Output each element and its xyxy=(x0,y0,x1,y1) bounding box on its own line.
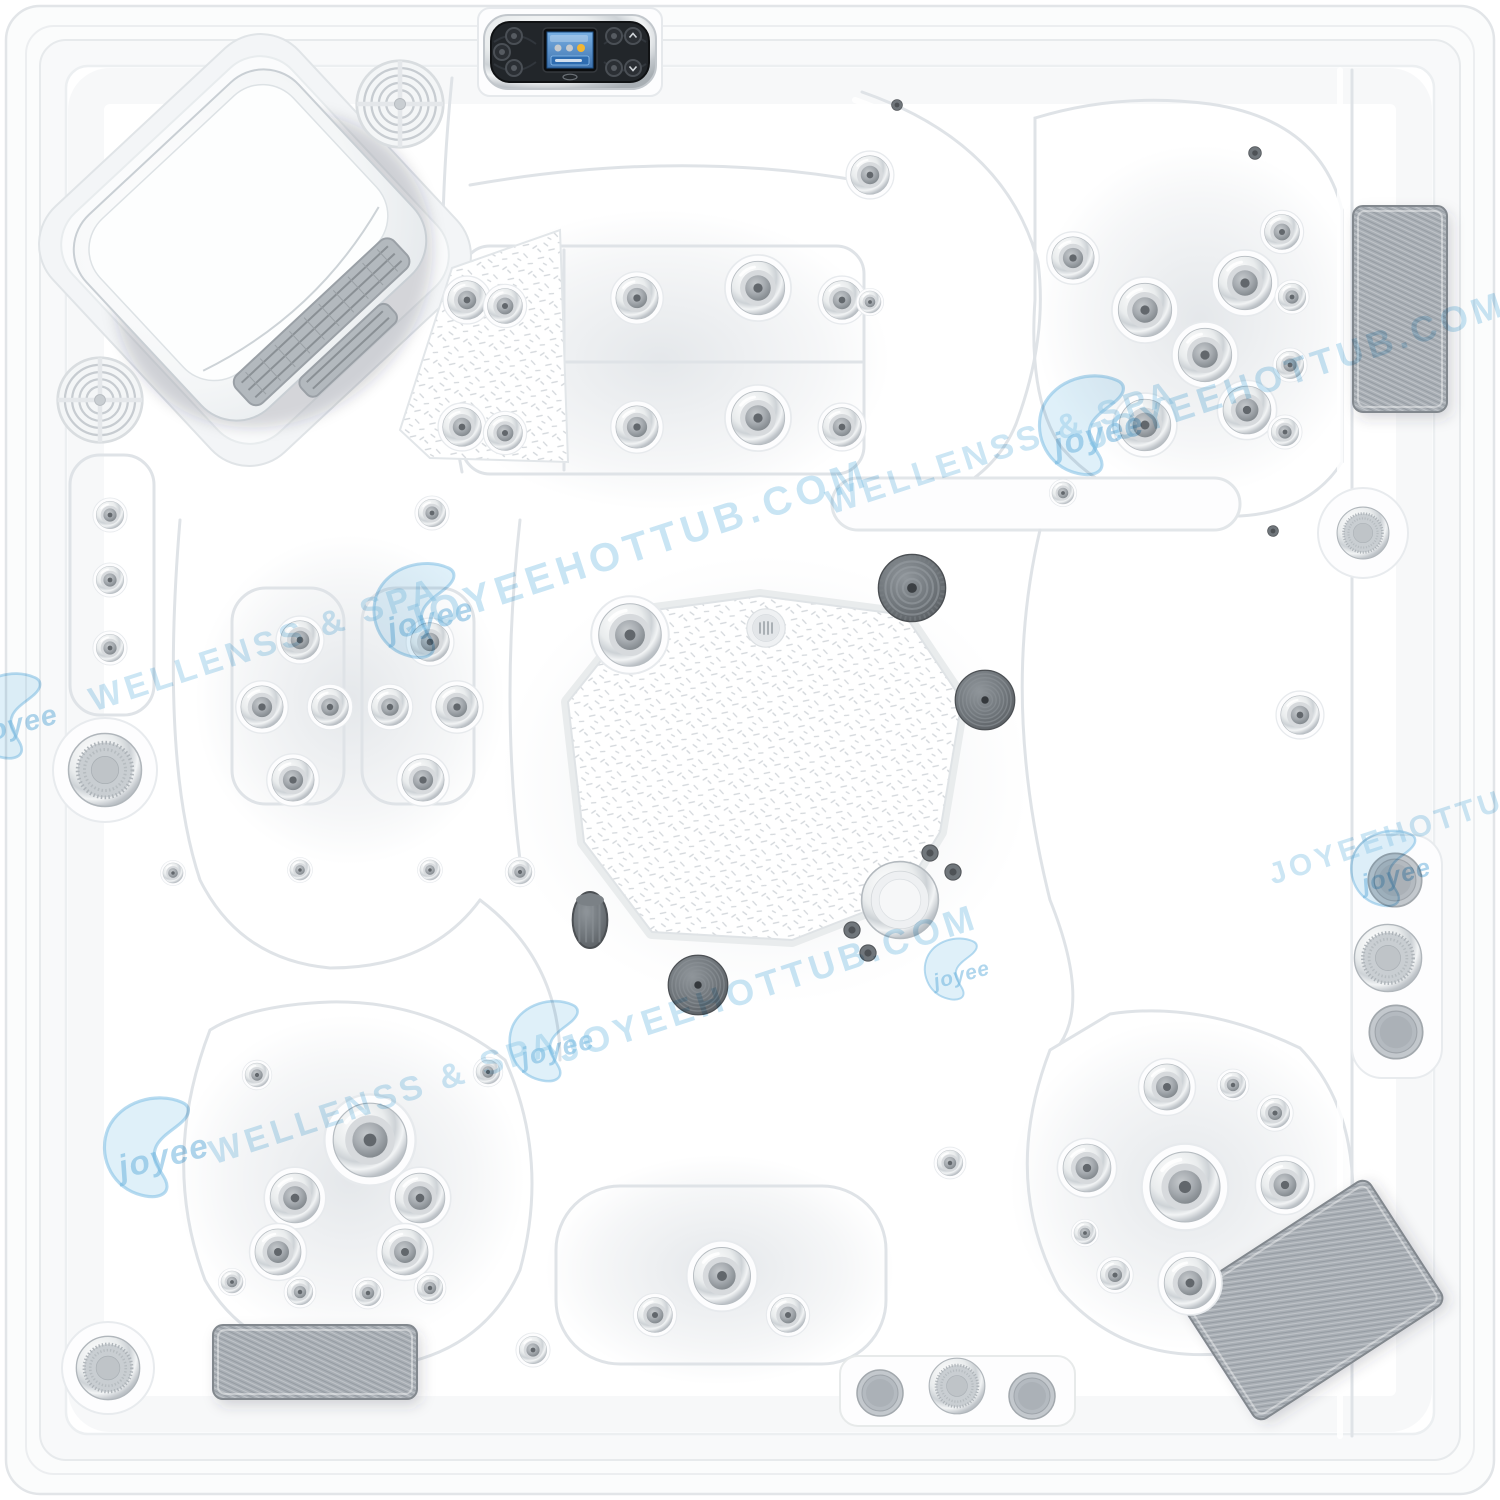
hot-tub-photo: joyeeJOYEEHOTTUB.COMWELLENSS & SPAWELLEN… xyxy=(0,0,1500,1500)
water-jet xyxy=(725,385,791,451)
jets2-button xyxy=(606,60,622,76)
filter-cap xyxy=(878,554,945,621)
speaker-grille xyxy=(357,61,443,147)
water-jet xyxy=(934,1147,966,1179)
water-jet xyxy=(633,1293,676,1336)
water-jet xyxy=(1139,1059,1196,1116)
water-jet xyxy=(1047,232,1099,284)
diverter-knob xyxy=(69,734,142,807)
water-jet xyxy=(687,1241,758,1312)
control-cap xyxy=(857,1370,903,1416)
fastener-dot xyxy=(945,864,961,880)
water-jet xyxy=(1071,1219,1098,1246)
water-jet xyxy=(287,857,312,882)
water-jet xyxy=(1142,1144,1229,1231)
speaker-grille xyxy=(58,358,143,443)
lcd-label-text-line xyxy=(555,59,582,62)
water-jet xyxy=(93,563,127,597)
water-jet xyxy=(1049,479,1076,506)
water-jet xyxy=(1217,1069,1249,1101)
water-jet xyxy=(1158,1251,1222,1315)
water-jet xyxy=(846,151,894,199)
water-jet xyxy=(611,401,663,453)
water-jet xyxy=(367,684,413,730)
water-jet xyxy=(611,272,663,324)
water-jet xyxy=(1275,280,1309,314)
water-jet xyxy=(766,1293,809,1336)
water-jet xyxy=(505,857,535,887)
water-jet xyxy=(218,1268,245,1295)
control-cap xyxy=(1009,1373,1055,1419)
water-jet xyxy=(1097,1257,1133,1293)
water-jet xyxy=(93,498,127,532)
water-jet xyxy=(93,631,127,665)
water-jet xyxy=(267,754,319,806)
mode-button xyxy=(494,44,510,60)
lcd-status-icon-row xyxy=(550,35,588,42)
control-panel xyxy=(478,8,662,96)
water-jet xyxy=(352,1277,384,1309)
water-jet xyxy=(1255,1155,1314,1214)
water-jet xyxy=(1276,691,1324,739)
water-jet xyxy=(1257,1095,1293,1131)
water-jet xyxy=(242,1060,272,1090)
diverter-knob xyxy=(1337,507,1389,559)
lcd-mode-dots xyxy=(555,44,586,52)
water-jet xyxy=(431,681,483,733)
water-jet xyxy=(389,1167,451,1229)
water-jet xyxy=(415,496,449,530)
water-jet xyxy=(725,255,791,321)
temp-down-button xyxy=(625,60,641,76)
water-jet xyxy=(1057,1138,1116,1197)
water-jet xyxy=(414,1272,446,1304)
diverter-knob xyxy=(76,1336,139,1399)
water-jet xyxy=(856,288,883,315)
filter-cartridge xyxy=(573,892,608,948)
water-jet xyxy=(483,411,526,454)
temp-up-button xyxy=(625,28,641,44)
water-jet xyxy=(417,857,442,882)
fastener-dot xyxy=(892,100,903,111)
suction-drain xyxy=(747,609,785,647)
water-jet xyxy=(264,1167,326,1229)
light-button xyxy=(506,60,522,76)
diverter-knob xyxy=(1354,924,1421,991)
water-jet xyxy=(591,596,669,674)
water-jet xyxy=(307,684,353,730)
water-jet xyxy=(516,1333,550,1367)
fastener-dot xyxy=(1249,147,1262,160)
water-jet xyxy=(377,1224,434,1281)
water-jet xyxy=(1112,277,1178,343)
power-button xyxy=(506,28,522,44)
water-jet xyxy=(1268,415,1302,449)
water-jet xyxy=(483,284,526,327)
control-cap xyxy=(1369,1005,1422,1058)
filter-cap xyxy=(955,670,1015,730)
water-jet xyxy=(438,403,486,451)
water-jet xyxy=(818,403,866,451)
water-jet xyxy=(1260,210,1303,253)
water-jet xyxy=(250,1224,307,1281)
hot-tub-svg: joyeeJOYEEHOTTUB.COMWELLENSS & SPAWELLEN… xyxy=(0,0,1500,1500)
water-jet xyxy=(284,1276,316,1308)
headrest-pad xyxy=(213,1325,421,1405)
jets1-button xyxy=(606,28,622,44)
water-jet xyxy=(1212,250,1278,316)
fastener-dot xyxy=(922,845,938,861)
water-jet xyxy=(236,681,288,733)
fastener-dot xyxy=(1268,526,1279,537)
water-jet xyxy=(160,860,185,885)
water-jet xyxy=(397,754,449,806)
diverter-knob xyxy=(929,1358,985,1414)
